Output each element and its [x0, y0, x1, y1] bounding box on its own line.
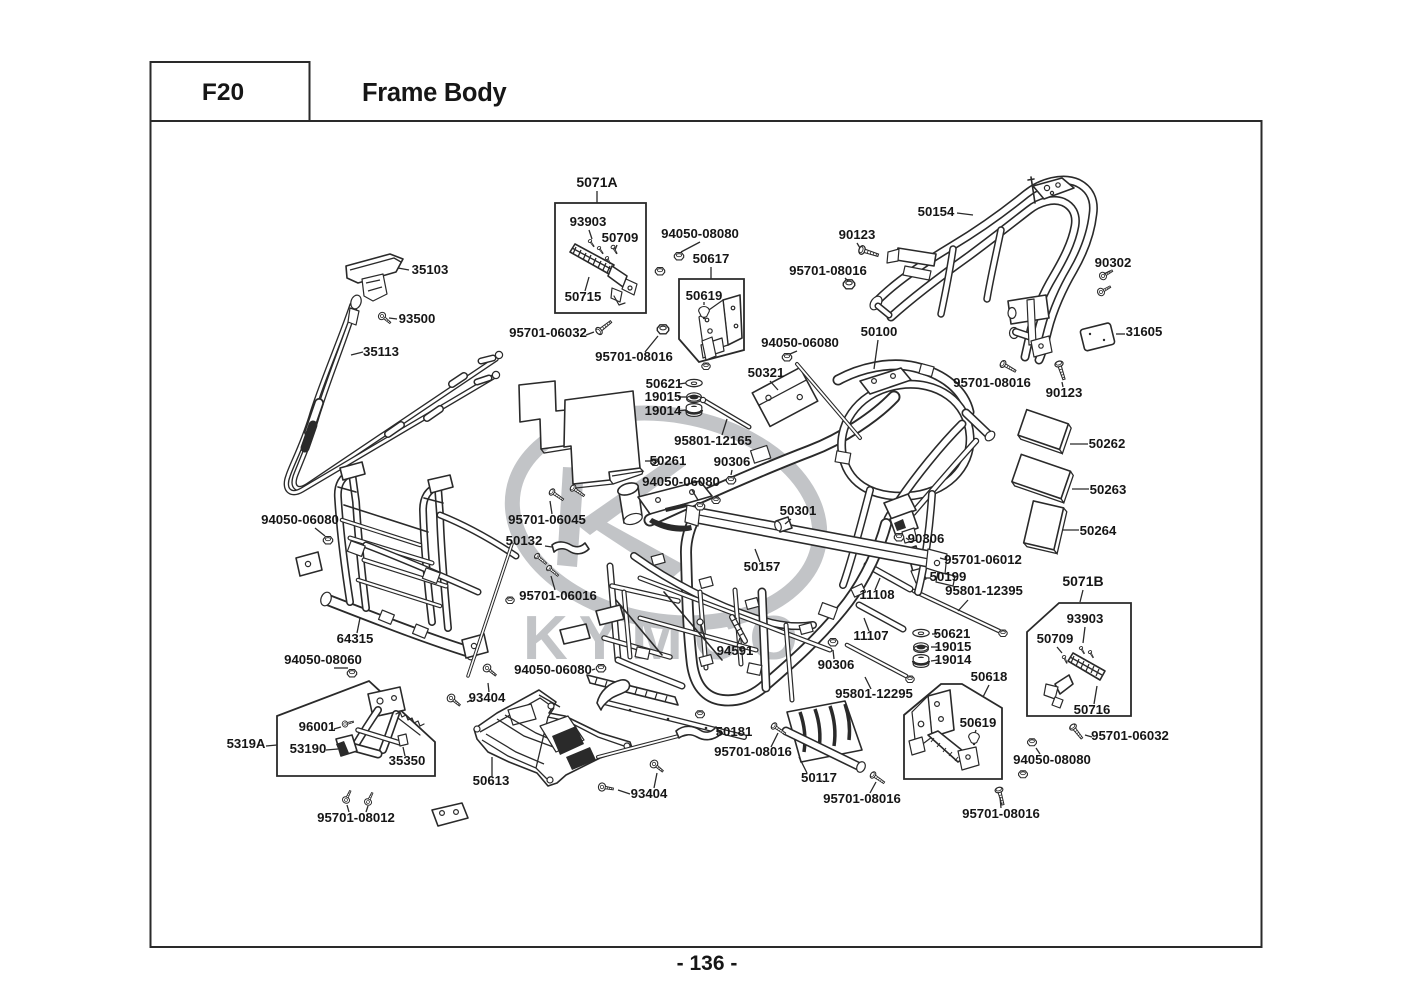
- svg-text:95801-12295: 95801-12295: [835, 686, 913, 701]
- svg-text:50321: 50321: [748, 365, 785, 380]
- svg-text:Frame Body: Frame Body: [362, 79, 507, 107]
- svg-text:35350: 35350: [389, 753, 426, 768]
- svg-text:90306: 90306: [714, 454, 751, 469]
- svg-text:19014: 19014: [645, 403, 682, 418]
- svg-text:50261: 50261: [650, 453, 687, 468]
- svg-text:50618: 50618: [971, 669, 1008, 684]
- svg-text:95701-08016: 95701-08016: [953, 375, 1031, 390]
- svg-text:50619: 50619: [686, 288, 723, 303]
- svg-text:50157: 50157: [744, 559, 781, 574]
- svg-text:50301: 50301: [780, 503, 817, 518]
- svg-text:11108: 11108: [859, 587, 894, 602]
- svg-text:94591: 94591: [717, 643, 754, 658]
- svg-text:95701-06012: 95701-06012: [944, 552, 1022, 567]
- svg-text:90306: 90306: [818, 657, 855, 672]
- svg-text:90302: 90302: [1095, 255, 1132, 270]
- svg-text:94050-06080: 94050-06080: [514, 662, 592, 677]
- svg-text:90123: 90123: [839, 227, 876, 242]
- svg-text:94050-06080: 94050-06080: [261, 512, 339, 527]
- svg-text:93903: 93903: [1067, 611, 1104, 626]
- svg-text:93404: 93404: [631, 786, 668, 801]
- svg-text:95701-08012: 95701-08012: [317, 810, 395, 825]
- svg-text:31605: 31605: [1126, 324, 1163, 339]
- svg-text:93404: 93404: [469, 690, 506, 705]
- svg-text:F20: F20: [202, 79, 244, 106]
- svg-text:53190: 53190: [290, 741, 327, 756]
- svg-text:94050-06080: 94050-06080: [642, 474, 720, 489]
- svg-text:90123: 90123: [1046, 385, 1083, 400]
- svg-text:50262: 50262: [1089, 436, 1126, 451]
- svg-text:19015: 19015: [645, 389, 682, 404]
- svg-text:50613: 50613: [473, 773, 510, 788]
- svg-text:95701-08016: 95701-08016: [595, 349, 673, 364]
- svg-text:50181: 50181: [716, 724, 753, 739]
- svg-text:64315: 64315: [337, 631, 374, 646]
- svg-text:50100: 50100: [861, 324, 898, 339]
- svg-text:95701-08016: 95701-08016: [962, 806, 1040, 821]
- svg-text:95701-06016: 95701-06016: [519, 588, 597, 603]
- svg-text:96001: 96001: [299, 719, 336, 734]
- svg-text:95801-12395: 95801-12395: [945, 583, 1023, 598]
- svg-text:50716: 50716: [1074, 702, 1111, 717]
- svg-text:93500: 93500: [399, 311, 436, 326]
- svg-text:- 136 -: - 136 -: [677, 952, 738, 975]
- svg-text:50709: 50709: [1037, 631, 1074, 646]
- svg-text:95701-06032: 95701-06032: [509, 325, 587, 340]
- svg-text:35113: 35113: [363, 344, 399, 359]
- svg-text:5071A: 5071A: [576, 174, 617, 190]
- svg-text:19014: 19014: [935, 652, 972, 667]
- svg-text:94050-06080: 94050-06080: [761, 335, 839, 350]
- svg-text:93903: 93903: [570, 214, 607, 229]
- svg-text:50199: 50199: [930, 569, 967, 584]
- svg-text:50263: 50263: [1090, 482, 1127, 497]
- svg-text:35103: 35103: [412, 262, 449, 277]
- svg-text:5319A: 5319A: [227, 736, 266, 751]
- svg-text:94050-08080: 94050-08080: [661, 226, 739, 241]
- svg-text:95701-06032: 95701-06032: [1091, 728, 1169, 743]
- svg-text:95701-08016: 95701-08016: [823, 791, 901, 806]
- svg-text:95801-12165: 95801-12165: [674, 433, 752, 448]
- svg-text:50709: 50709: [602, 230, 639, 245]
- svg-text:95701-08016: 95701-08016: [714, 744, 792, 759]
- svg-text:11107: 11107: [853, 628, 888, 643]
- svg-text:90306: 90306: [908, 531, 945, 546]
- svg-text:50117: 50117: [801, 770, 837, 785]
- svg-text:50132: 50132: [506, 533, 543, 548]
- svg-text:95701-08016: 95701-08016: [789, 263, 867, 278]
- svg-text:50619: 50619: [960, 715, 997, 730]
- svg-text:94050-08080: 94050-08080: [1013, 752, 1091, 767]
- svg-text:50154: 50154: [918, 204, 955, 219]
- svg-text:50715: 50715: [565, 289, 602, 304]
- svg-text:5071B: 5071B: [1062, 573, 1103, 589]
- svg-text:95701-06045: 95701-06045: [508, 512, 586, 527]
- svg-text:50617: 50617: [693, 251, 730, 266]
- svg-text:50264: 50264: [1080, 523, 1117, 538]
- svg-text:94050-08060: 94050-08060: [284, 652, 362, 667]
